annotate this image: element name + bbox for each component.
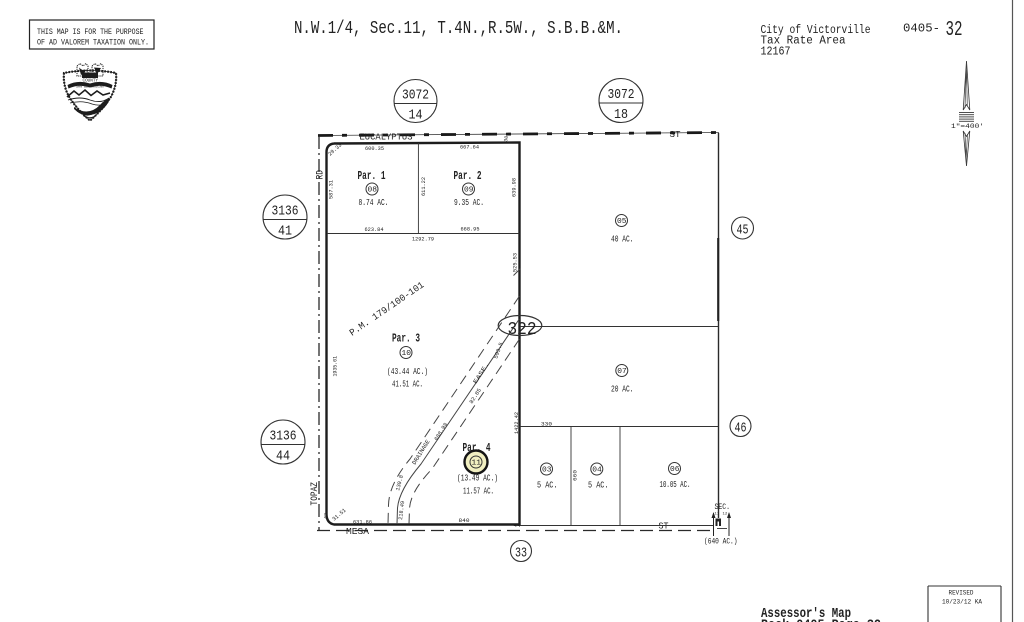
svg-text:03: 03 bbox=[542, 467, 552, 475]
svg-text:587.31: 587.31 bbox=[328, 179, 335, 199]
svg-text:3136: 3136 bbox=[270, 430, 297, 445]
svg-text:0405-: 0405- bbox=[903, 23, 940, 36]
svg-text:(640 AC.): (640 AC.) bbox=[704, 537, 738, 547]
svg-text:14: 14 bbox=[409, 109, 423, 124]
svg-text:1422.42: 1422.42 bbox=[513, 412, 520, 434]
svg-text:45: 45 bbox=[737, 224, 749, 239]
svg-text:09: 09 bbox=[464, 187, 474, 195]
svg-text:3072: 3072 bbox=[608, 88, 635, 103]
svg-text:THIS MAP IS FOR THE PURPOSE: THIS MAP IS FOR THE PURPOSE bbox=[37, 28, 144, 37]
svg-text:OF AD VALOREM TAXATION ONLY.: OF AD VALOREM TAXATION ONLY. bbox=[37, 38, 149, 47]
svg-text:1935.01: 1935.01 bbox=[332, 355, 339, 376]
svg-text:12167: 12167 bbox=[761, 46, 791, 59]
svg-text:667.64: 667.64 bbox=[460, 144, 480, 151]
svg-text:623.84: 623.84 bbox=[365, 226, 385, 233]
svg-text:08: 08 bbox=[368, 187, 378, 195]
svg-text:20 AC.: 20 AC. bbox=[611, 384, 634, 395]
svg-text:EASE.: EASE. bbox=[472, 361, 491, 385]
svg-text:Par. 2: Par. 2 bbox=[454, 169, 482, 183]
svg-text:30: 30 bbox=[503, 135, 510, 142]
svg-text:46: 46 bbox=[735, 422, 747, 437]
svg-text:SAN BERNARDINO: SAN BERNARDINO bbox=[76, 85, 104, 89]
svg-text:(43.44 AC.): (43.44 AC.) bbox=[387, 367, 428, 377]
svg-text:18: 18 bbox=[614, 108, 628, 123]
svg-text:05: 05 bbox=[617, 218, 627, 226]
svg-text:32: 32 bbox=[946, 19, 963, 42]
svg-text:593.5: 593.5 bbox=[492, 341, 504, 359]
svg-text:611.22: 611.22 bbox=[420, 177, 427, 196]
svg-text:42: 42 bbox=[323, 513, 329, 519]
svg-text:1292.79: 1292.79 bbox=[412, 236, 434, 243]
svg-text:668.95: 668.95 bbox=[461, 226, 480, 233]
svg-text:Book 0405 Page 32: Book 0405 Page 32 bbox=[761, 618, 881, 622]
svg-text:11: 11 bbox=[715, 513, 720, 517]
svg-text:10: 10 bbox=[402, 350, 412, 358]
svg-text:218.49: 218.49 bbox=[397, 501, 406, 521]
svg-text:EUCALYPTUS: EUCALYPTUS bbox=[360, 131, 413, 142]
svg-text:8.74 AC.: 8.74 AC. bbox=[359, 197, 389, 208]
svg-text:5 AC.: 5 AC. bbox=[537, 480, 558, 491]
svg-text:SEC.: SEC. bbox=[715, 502, 731, 512]
svg-text:RD: RD bbox=[314, 170, 326, 180]
svg-text:10/23/12 KA: 10/23/12 KA bbox=[942, 599, 983, 607]
svg-text:REVISED: REVISED bbox=[949, 590, 974, 598]
svg-text:07: 07 bbox=[617, 368, 627, 376]
svg-text:660: 660 bbox=[572, 470, 579, 481]
svg-text:MESA: MESA bbox=[346, 526, 369, 537]
svg-text:N.W.1/4, Sec.11, T.4N.,R.5W.,: N.W.1/4, Sec.11, T.4N.,R.5W., S.B.B.&M. bbox=[294, 19, 623, 39]
svg-text:31.51: 31.51 bbox=[331, 506, 348, 522]
svg-text:3136: 3136 bbox=[272, 205, 299, 220]
svg-text:10.05 AC.: 10.05 AC. bbox=[660, 479, 691, 490]
svg-text:P.M. 179/100-101: P.M. 179/100-101 bbox=[347, 279, 426, 338]
svg-text:9.35 AC.: 9.35 AC. bbox=[454, 197, 484, 208]
svg-text:Par. 3: Par. 3 bbox=[392, 332, 420, 346]
svg-text:1"=400': 1"=400' bbox=[951, 123, 984, 130]
svg-text:688.98: 688.98 bbox=[433, 421, 450, 442]
svg-text:840: 840 bbox=[459, 517, 470, 524]
svg-text:322: 322 bbox=[508, 319, 537, 340]
svg-text:Par. 1: Par. 1 bbox=[358, 169, 386, 183]
svg-text:TOPAZ: TOPAZ bbox=[310, 482, 321, 506]
svg-text:525.53: 525.53 bbox=[512, 253, 519, 272]
svg-text:ST: ST bbox=[670, 129, 681, 140]
svg-text:06: 06 bbox=[670, 466, 680, 474]
svg-text:330: 330 bbox=[541, 421, 552, 428]
svg-text:41: 41 bbox=[278, 225, 292, 240]
svg-text:40 AC.: 40 AC. bbox=[611, 234, 634, 245]
svg-text:600.35: 600.35 bbox=[365, 145, 384, 152]
svg-text:639.98: 639.98 bbox=[511, 178, 518, 197]
svg-text:33: 33 bbox=[515, 547, 527, 562]
svg-text:04: 04 bbox=[592, 467, 602, 475]
svg-text:(13.49 AC.): (13.49 AC.) bbox=[457, 474, 498, 484]
svg-text:5 AC.: 5 AC. bbox=[588, 480, 609, 491]
svg-text:44: 44 bbox=[276, 450, 290, 465]
svg-text:12: 12 bbox=[723, 513, 728, 517]
svg-text:3072: 3072 bbox=[402, 89, 429, 104]
svg-text:44: 44 bbox=[514, 523, 521, 529]
svg-text:41.51 AC.: 41.51 AC. bbox=[392, 379, 423, 390]
svg-text:11: 11 bbox=[472, 460, 482, 468]
svg-text:11.57 AC.: 11.57 AC. bbox=[463, 486, 494, 497]
svg-text:631.86: 631.86 bbox=[353, 519, 372, 526]
